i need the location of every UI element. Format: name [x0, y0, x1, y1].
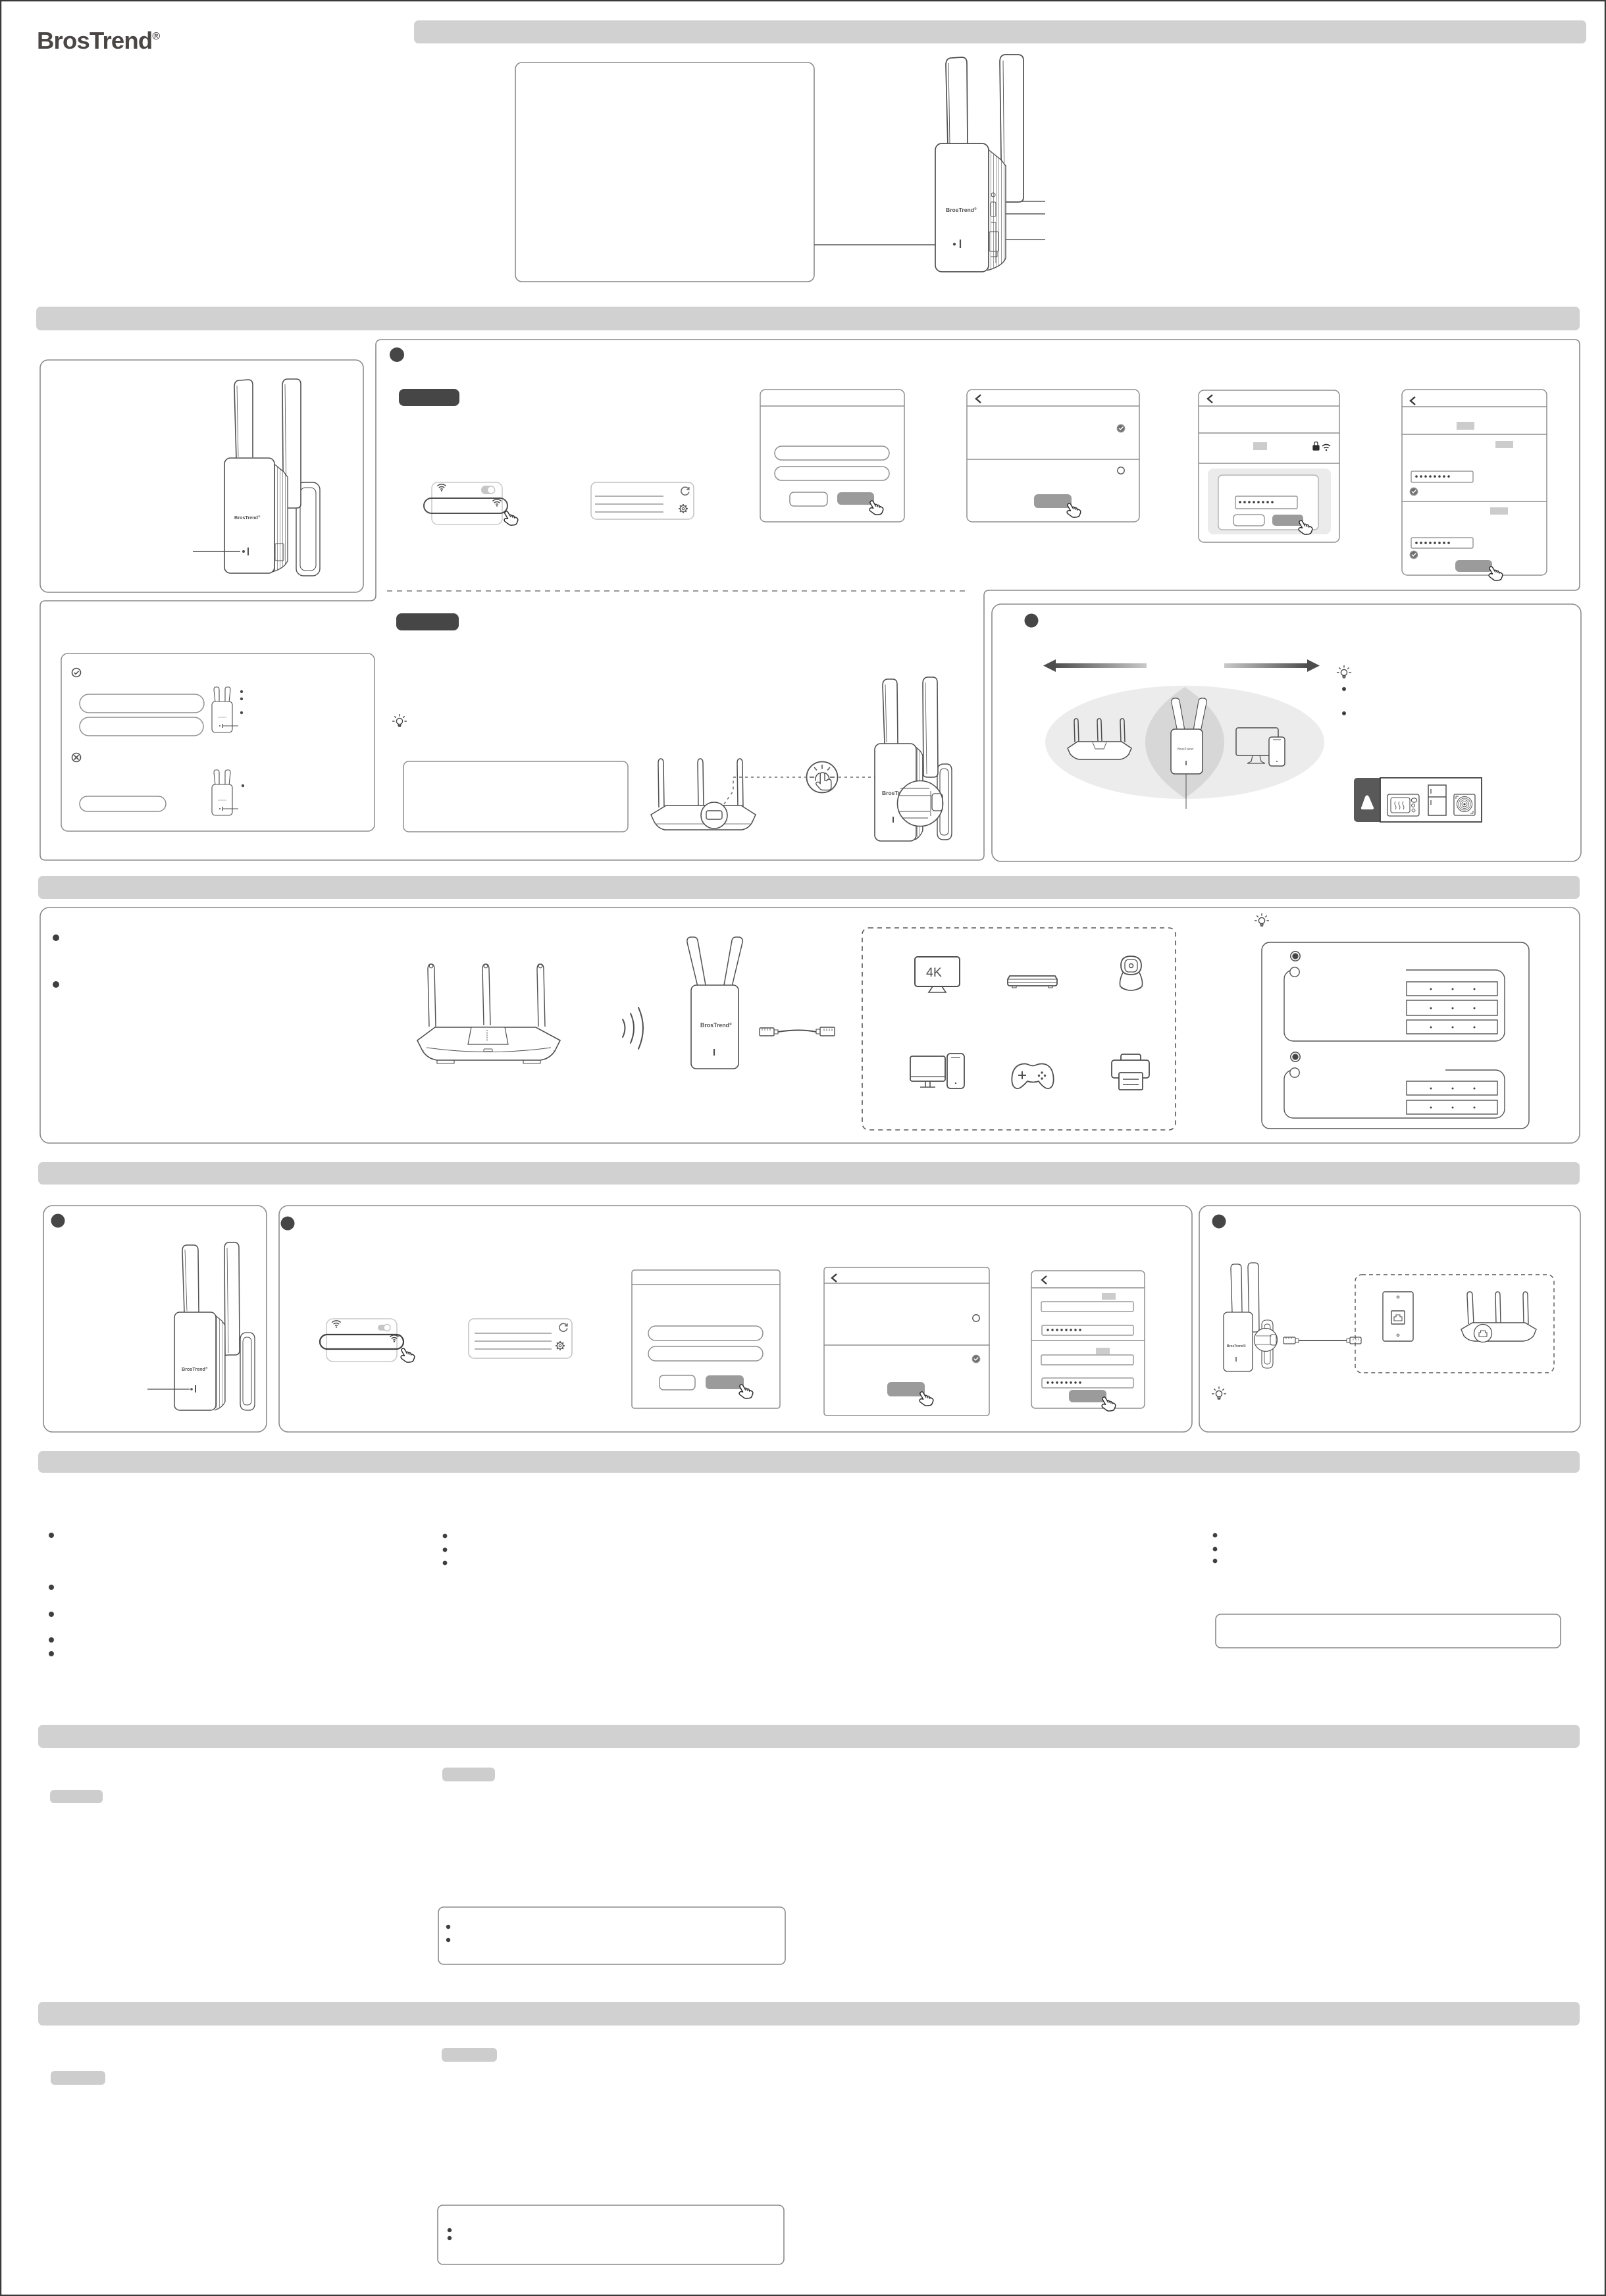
svg-text:BrosTrend®: BrosTrend®: [700, 1022, 732, 1029]
svg-text:BrosTrend®: BrosTrend®: [946, 207, 977, 213]
svg-text:BrosTrend®: BrosTrend®: [234, 515, 261, 521]
svg-text:BrosTrend: BrosTrend: [1178, 748, 1193, 752]
svg-text:BrosTrend®: BrosTrend®: [37, 27, 160, 54]
svg-text:BrosTrend®: BrosTrend®: [182, 1366, 208, 1373]
svg-text:4K: 4K: [926, 965, 942, 980]
svg-text:BrosTrend®: BrosTrend®: [1227, 1344, 1246, 1348]
